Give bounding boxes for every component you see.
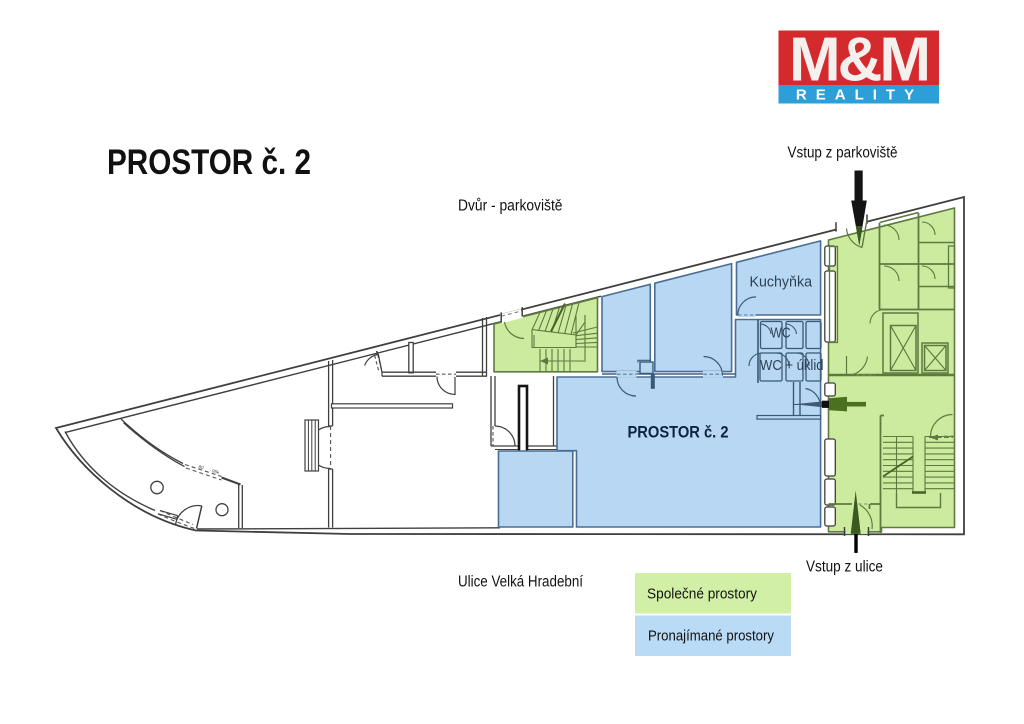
svg-text:Dvůr - parkoviště: Dvůr - parkoviště [458, 198, 563, 215]
svg-text:Kuchyňka: Kuchyňka [750, 275, 813, 291]
svg-text:REALITY: REALITY [796, 87, 923, 104]
svg-text:WC + úklid: WC + úklid [760, 358, 824, 374]
svg-text:PROSTOR č. 2: PROSTOR č. 2 [628, 424, 729, 442]
svg-text:PROSTOR č. 2: PROSTOR č. 2 [107, 143, 311, 182]
svg-text:Ulice Velká Hradební: Ulice Velká Hradební [458, 574, 584, 591]
svg-text:Vstup z parkoviště: Vstup z parkoviště [788, 145, 898, 162]
svg-text:M&M: M&M [789, 26, 928, 95]
svg-text:Společné prostory: Společné prostory [647, 586, 757, 603]
svg-text:WC: WC [771, 326, 791, 342]
svg-text:Pronajímané prostory: Pronajímané prostory [648, 628, 774, 645]
svg-text:Vstup z ulice: Vstup z ulice [806, 559, 883, 576]
